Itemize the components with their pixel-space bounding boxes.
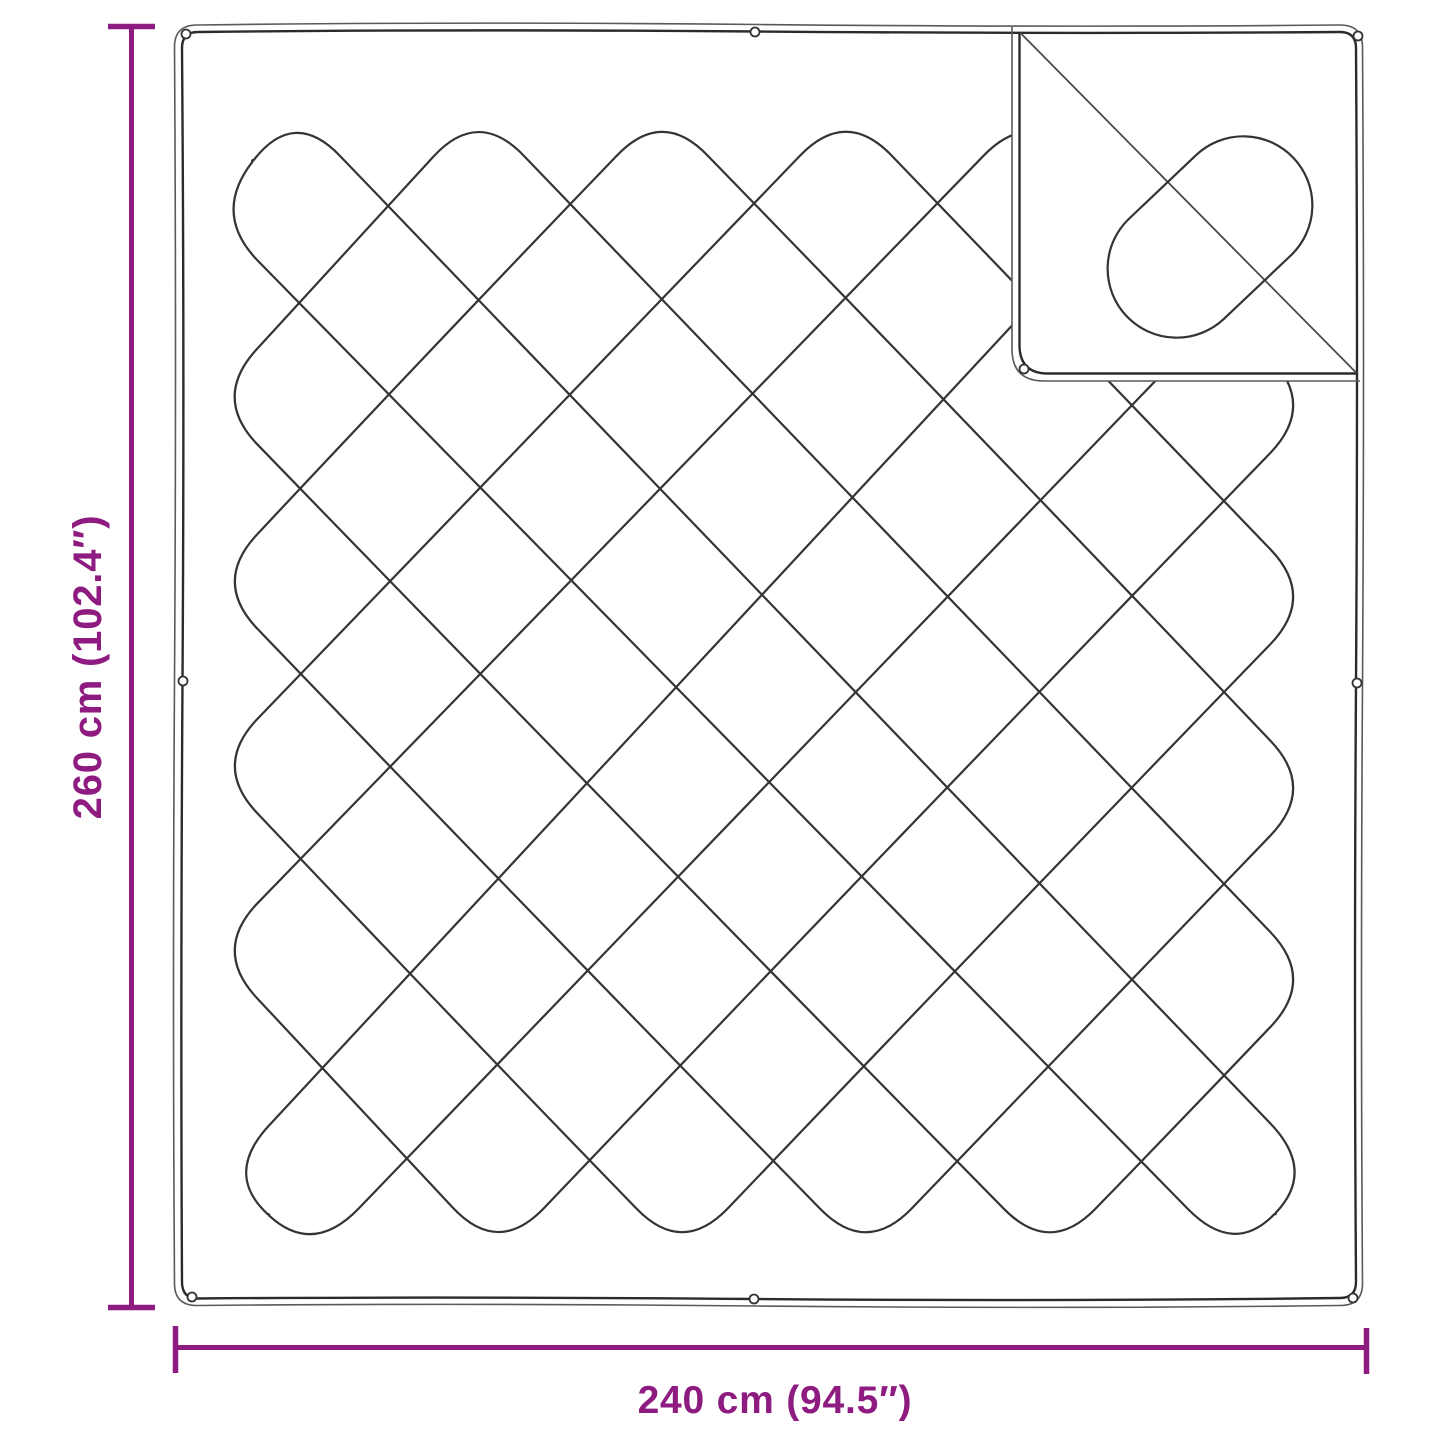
svg-text:260 cm (102.4″): 260 cm (102.4″) bbox=[66, 515, 110, 820]
svg-text:240 cm (94.5″): 240 cm (94.5″) bbox=[638, 1379, 913, 1422]
